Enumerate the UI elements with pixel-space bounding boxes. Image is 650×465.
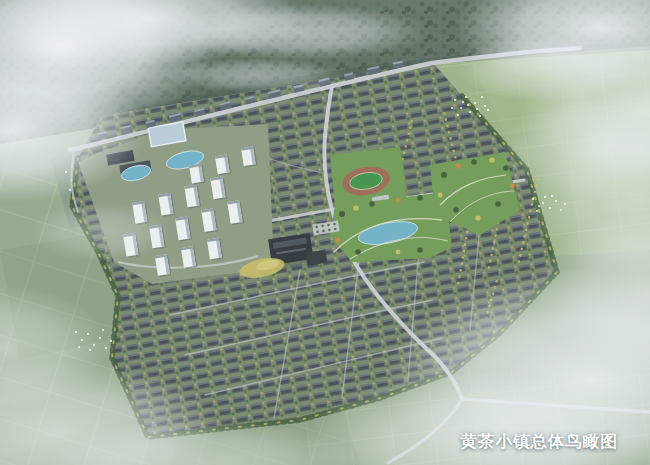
atmosphere-veil bbox=[0, 0, 650, 465]
aerial-rendering: 黄茶小镇总体鸟瞰图 bbox=[0, 0, 650, 465]
scene-canvas bbox=[0, 0, 650, 465]
mist-layer bbox=[0, 0, 650, 465]
caption-title: 黄茶小镇总体鸟瞰图 bbox=[461, 431, 619, 453]
